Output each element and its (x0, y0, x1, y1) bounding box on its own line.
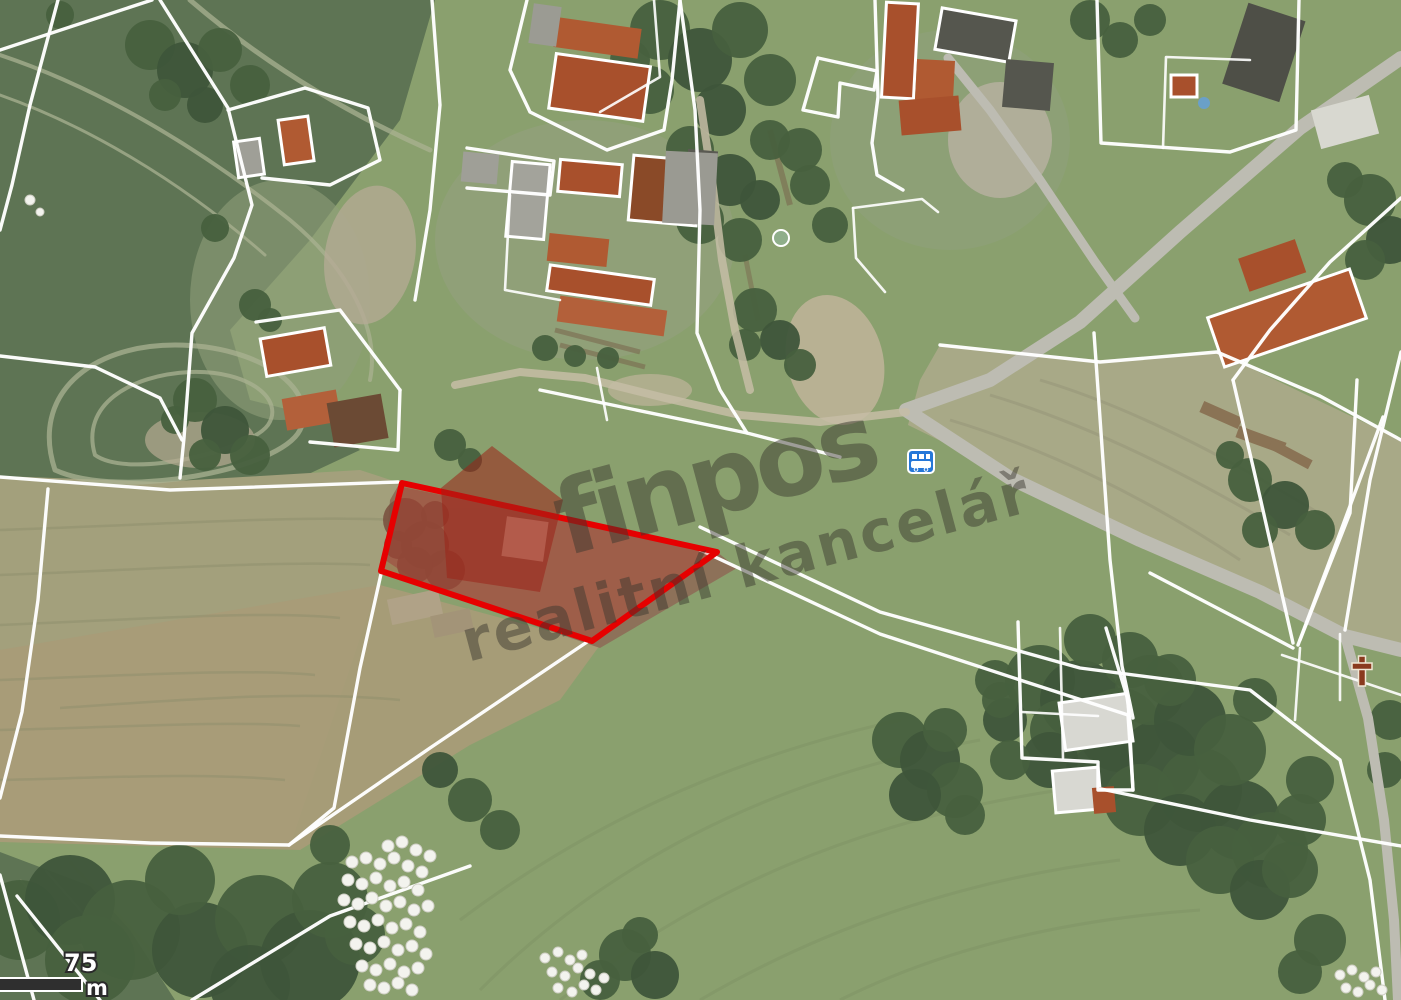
scale-bar-rule (0, 978, 82, 991)
bus-stop-icon (908, 450, 934, 473)
scale-bar-unit: m (86, 976, 108, 1000)
map-image: finpos realitní kancelář 75 m (0, 0, 1401, 1000)
scale-bar-value: 75 (64, 949, 97, 977)
map-viewport: finpos realitní kancelář 75 m (0, 0, 1401, 1000)
